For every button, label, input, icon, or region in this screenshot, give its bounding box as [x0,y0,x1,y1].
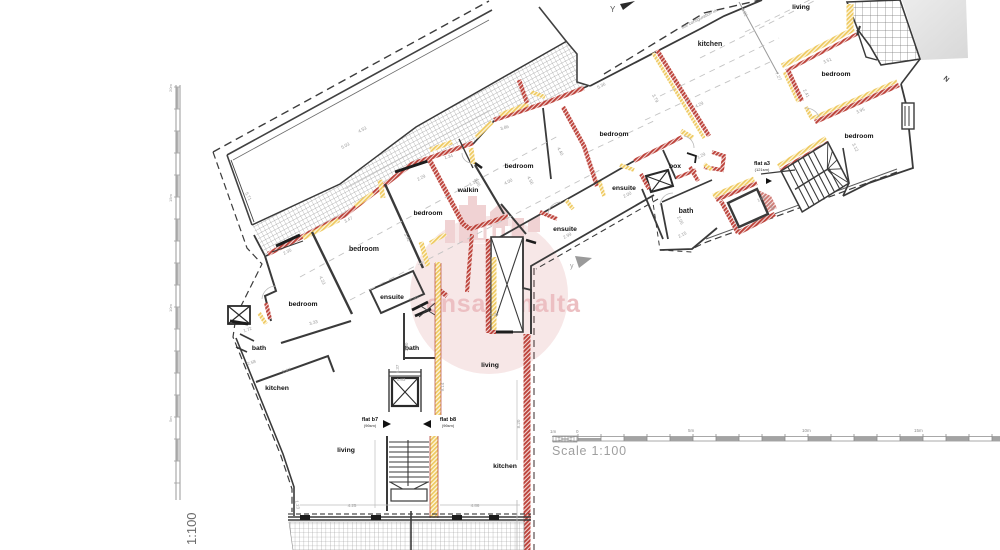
svg-text:ensuite: ensuite [612,185,636,192]
svg-text:Y: Y [610,5,616,14]
svg-text:15m: 15m [914,428,923,433]
svg-text:4.23: 4.23 [318,275,327,286]
svg-text:5m: 5m [688,428,695,433]
svg-text:kitchen: kitchen [265,385,289,392]
svg-text:3.51: 3.51 [822,56,832,64]
svg-text:1.29: 1.29 [696,151,707,160]
svg-text:(96sm): (96sm) [442,423,455,428]
svg-text:site configuration ia.: site configuration ia. [680,7,718,30]
svg-text:(96sm): (96sm) [364,423,377,428]
svg-text:2.58: 2.58 [247,359,257,367]
svg-text:2.15: 2.15 [677,230,688,239]
svg-text:4.86: 4.86 [471,503,480,508]
svg-text:bedroom: bedroom [844,133,873,140]
svg-text:kitchen: kitchen [493,463,517,470]
svg-text:N: N [942,75,950,84]
svg-text:walkin: walkin [457,187,479,194]
svg-text:9.14: 9.14 [440,382,445,391]
svg-text:bedroom: bedroom [504,163,533,170]
svg-text:bedroom: bedroom [821,71,850,78]
svg-text:bedroom: bedroom [288,301,317,308]
svg-text:3.95: 3.95 [855,106,865,114]
svg-text:y: y [570,263,574,270]
svg-text:2.87: 2.87 [282,367,292,375]
svg-text:5.03: 5.03 [340,141,351,150]
svg-text:1:100: 1:100 [184,512,199,545]
svg-text:4.00: 4.00 [503,177,514,186]
svg-text:box: box [669,163,681,170]
svg-text:15m: 15m [168,194,173,202]
svg-text:(121sm): (121sm) [755,167,770,172]
svg-text:1.37: 1.37 [395,364,400,373]
svg-text:4.82: 4.82 [740,7,749,18]
svg-text:bath: bath [252,345,266,352]
svg-text:3.33: 3.33 [309,319,319,326]
svg-text:living: living [792,4,810,11]
svg-text:2.05: 2.05 [676,215,685,226]
svg-text:1.34: 1.34 [444,153,454,160]
svg-text:4.53: 4.53 [357,125,368,134]
svg-text:2.30: 2.30 [404,342,409,351]
svg-text:Scale 1:100: Scale 1:100 [552,444,627,458]
svg-text:ensuite: ensuite [380,294,404,301]
svg-text:4.56: 4.56 [526,175,535,186]
svg-text:bedroom: bedroom [599,131,628,138]
svg-text:5.71: 5.71 [244,191,253,202]
svg-text:bedroom: bedroom [349,246,379,253]
svg-text:1.72: 1.72 [243,326,253,334]
svg-text:living: living [337,447,355,454]
svg-text:10m: 10m [802,428,811,433]
svg-text:4.40: 4.40 [556,146,565,157]
svg-text:7.27: 7.27 [774,71,783,82]
svg-text:0: 0 [576,429,579,434]
svg-text:1.83: 1.83 [397,377,406,382]
svg-text:5m: 5m [168,416,173,422]
svg-text:2.29: 2.29 [416,173,427,182]
svg-text:4.25: 4.25 [348,503,357,508]
svg-text:3.12: 3.12 [851,142,860,153]
svg-text:10m: 10m [168,304,173,312]
svg-text:ensuite: ensuite [553,226,577,233]
svg-text:1m: 1m [550,429,557,434]
svg-text:4.29: 4.29 [694,100,705,109]
svg-text:bedroom: bedroom [413,210,442,217]
svg-text:20m: 20m [168,84,173,92]
svg-text:kitchen: kitchen [698,41,723,48]
svg-text:1.23: 1.23 [294,500,301,510]
svg-text:2.41: 2.41 [802,88,811,99]
svg-text:living: living [481,362,499,369]
svg-text:3.86: 3.86 [500,124,510,131]
svg-text:8.20: 8.20 [516,419,521,428]
svg-text:3.79: 3.79 [651,93,660,104]
svg-text:1.30: 1.30 [490,312,499,317]
